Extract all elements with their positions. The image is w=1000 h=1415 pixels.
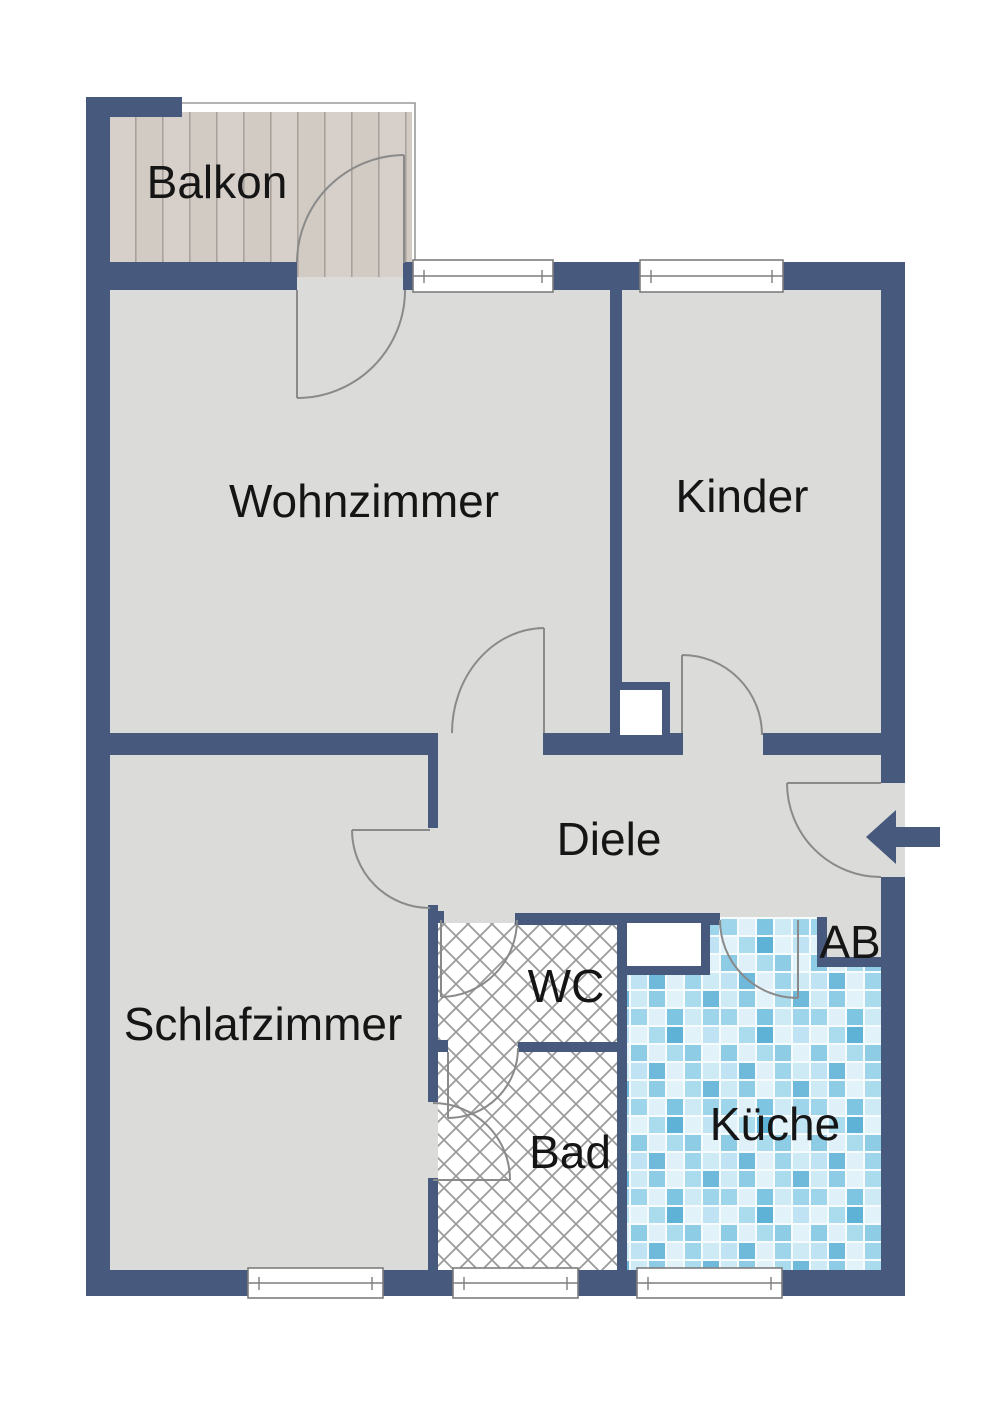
wall-segment <box>428 1178 438 1270</box>
shaft-box <box>620 690 662 735</box>
wall-segment <box>763 733 881 755</box>
label-kueche: Küche <box>710 1098 840 1150</box>
wall-segment <box>428 733 438 828</box>
wall-segment <box>86 97 182 117</box>
balcony-door-threshold <box>297 262 403 277</box>
window-wohnzimmer <box>413 260 553 292</box>
wall-segment <box>782 1270 905 1296</box>
window-bad <box>453 1268 578 1298</box>
label-bad: Bad <box>529 1126 611 1178</box>
wall-segment <box>543 733 683 755</box>
wall-segment <box>881 262 905 783</box>
label-wohnzimmer: Wohnzimmer <box>229 475 499 527</box>
threshold-floor <box>297 277 403 290</box>
label-diele: Diele <box>557 813 662 865</box>
wall-segment <box>578 1270 637 1296</box>
wall-segment <box>403 262 413 290</box>
label-ab: AB <box>819 916 880 968</box>
window-schlafzimmer <box>248 1268 383 1298</box>
wall-segment <box>428 905 438 1102</box>
wall-segment <box>86 97 110 1296</box>
label-schlafzimmer: Schlafzimmer <box>124 998 403 1050</box>
wall-segment <box>553 262 640 290</box>
wall-segment <box>86 1270 248 1296</box>
wall-segment <box>110 262 297 290</box>
window-kinder <box>640 260 783 292</box>
wall-segment <box>518 1042 627 1052</box>
wall-segment <box>610 290 622 682</box>
label-balkon: Balkon <box>147 156 288 208</box>
window-kueche <box>637 1268 782 1298</box>
floor-plan: Balkon Wohnzimmer Kinder Diele Schlafzim… <box>0 0 1000 1415</box>
wall-segment <box>383 1270 453 1296</box>
wall-segment <box>881 877 905 1296</box>
wall-segment <box>110 733 438 755</box>
wall-segment <box>428 1040 448 1052</box>
label-kinder: Kinder <box>676 470 809 522</box>
shaft-box <box>627 923 701 966</box>
label-wc: WC <box>528 960 605 1012</box>
